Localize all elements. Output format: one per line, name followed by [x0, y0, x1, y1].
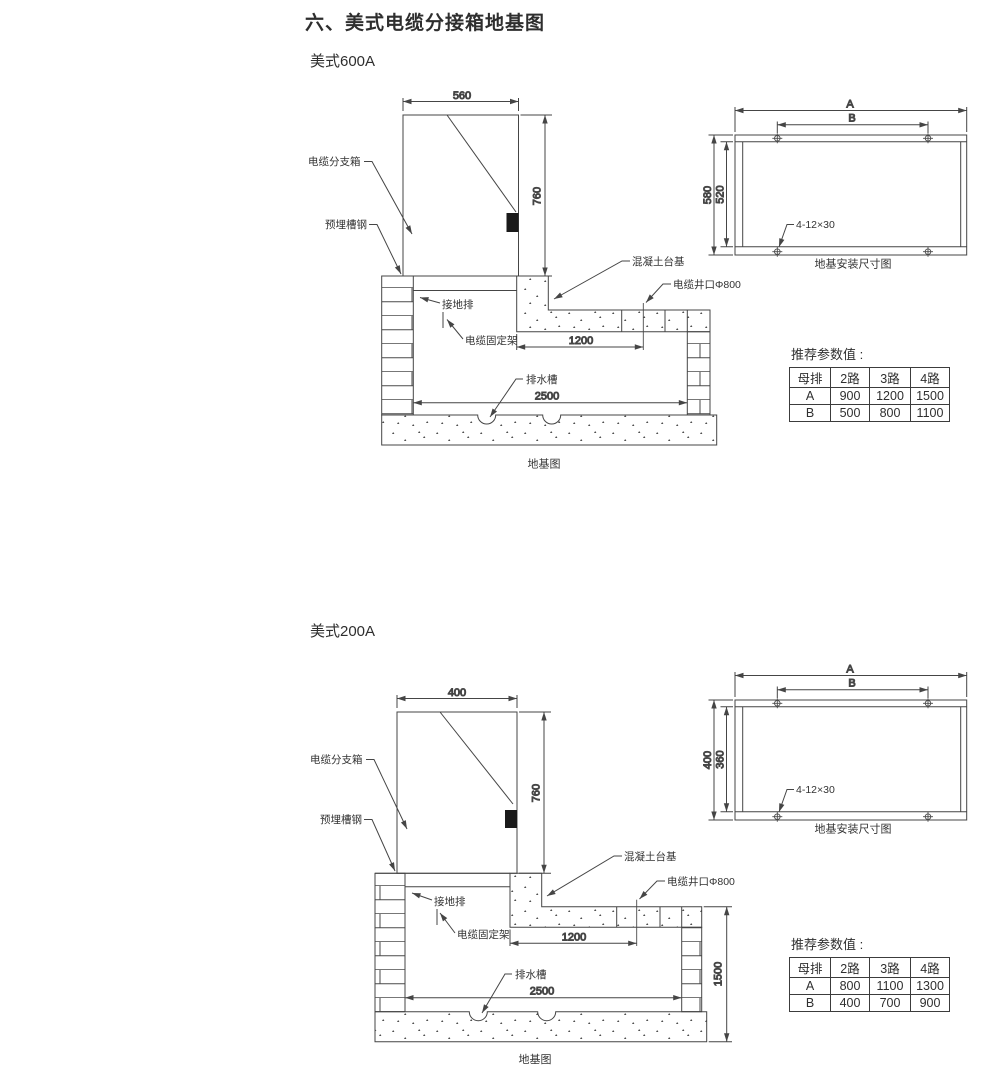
foundation-frame — [735, 700, 967, 820]
col-header: 3路 — [870, 368, 911, 388]
cell: 1200 — [870, 388, 911, 405]
label-drain: 排水槽 — [515, 968, 547, 981]
foundation-frame — [735, 135, 967, 255]
col-header: 3路 — [870, 958, 911, 978]
cabinet-outline — [403, 115, 519, 276]
table-row: B 500 800 1100 — [790, 405, 950, 422]
dim-inner-height: 360 — [715, 707, 734, 812]
brick-wall-right — [682, 927, 702, 1011]
dim-b-value: B — [848, 678, 855, 690]
dim-cabinet-width: 400 — [397, 687, 517, 708]
cell: 500 — [831, 405, 870, 422]
plan-view-caption: 地基安装尺寸图 — [815, 822, 892, 836]
cell: 400 — [831, 995, 870, 1012]
label-bolts: 4-12×30 — [796, 784, 835, 796]
params-table: 母排 2路 3路 4路 A 800 1100 1300 B 400 700 90… — [789, 957, 950, 1012]
dim-cabinet-width: 560 — [403, 90, 519, 111]
col-header: 母排 — [790, 368, 831, 388]
bottom-slab — [375, 1012, 707, 1042]
dim-a-value: A — [846, 99, 854, 111]
foundation — [375, 873, 707, 1041]
col-header: 2路 — [831, 368, 870, 388]
label-concrete-base: 混凝土台基 — [632, 255, 685, 268]
section-title-600a: 美式600A — [310, 50, 375, 71]
dim-cabinet-height: 760 — [520, 115, 552, 276]
col-header: 4路 — [911, 368, 950, 388]
brick-wall-right — [687, 332, 710, 415]
foundation — [382, 276, 717, 445]
dim-foundation-width: 2500 — [405, 986, 682, 998]
table-header-row: 母排 2路 3路 4路 — [790, 368, 950, 388]
cabinet-outline — [397, 712, 517, 873]
cell: 800 — [831, 978, 870, 995]
side-view-caption: 地基图 — [528, 458, 561, 471]
page-canvas: 六、美式电缆分接箱地基图 美式600A 美式200A 560 — [0, 0, 988, 1067]
cell: 900 — [911, 995, 950, 1012]
cell: 900 — [831, 388, 870, 405]
label-cable-well: 电缆井口Φ800 — [673, 278, 741, 291]
page-title: 六、美式电缆分接箱地基图 — [305, 8, 545, 35]
params-600a: 推荐参数值 : 母排 2路 3路 4路 A 900 1200 1500 B 50… — [789, 344, 950, 422]
cell: A — [790, 388, 831, 405]
cell: 1100 — [911, 405, 950, 422]
label-embedded-channel: 预埋槽钢 — [320, 813, 362, 826]
dim-inner-value: 360 — [715, 750, 727, 768]
dim-height-value: 760 — [532, 187, 544, 205]
dim-b: B — [777, 678, 928, 699]
dim-inner-value: 520 — [715, 185, 727, 203]
cell: 700 — [870, 995, 911, 1012]
side-view-600a: 560 760 1200 2500 电缆分支箱 — [300, 92, 750, 474]
label-concrete-base: 混凝土台基 — [624, 850, 677, 863]
plan-view-600a: A B 580 520 4-12×30 地基安装尺寸图 — [700, 95, 988, 277]
dim-depth-value: 1500 — [713, 962, 725, 986]
dim-cabinet-height: 760 — [519, 712, 551, 873]
dim-a-value: A — [846, 664, 854, 676]
cabinet — [397, 712, 517, 873]
dim-b: B — [777, 113, 928, 134]
dim-height-value: 760 — [531, 784, 543, 802]
col-header: 4路 — [911, 958, 950, 978]
table-header-row: 母排 2路 3路 4路 — [790, 958, 950, 978]
dim-platform-width: 1200 — [517, 334, 644, 350]
cell: B — [790, 405, 831, 422]
side-view-caption: 地基图 — [519, 1053, 552, 1066]
dim-width-value: 400 — [448, 687, 466, 699]
label-cable-bracket: 电缆固定架 — [457, 928, 510, 941]
door-handle — [507, 213, 519, 232]
side-view-200a: 400 760 1200 2500 — [300, 690, 750, 1067]
plan-view-caption: 地基安装尺寸图 — [815, 257, 892, 271]
dim-base-value: 2500 — [530, 986, 554, 998]
params-title: 推荐参数值 : — [791, 344, 950, 363]
bottom-slab — [382, 415, 717, 445]
cell: A — [790, 978, 831, 995]
label-cabinet: 电缆分支箱 — [310, 753, 363, 766]
label-drain: 排水槽 — [526, 373, 558, 386]
plan-view-200a: A B 400 360 4-12×30 地基安装尺寸图 — [700, 660, 988, 842]
dim-foundation-width: 2500 — [413, 391, 687, 403]
label-cable-bracket: 电缆固定架 — [465, 334, 518, 347]
cabinet — [403, 115, 519, 276]
dim-outer-value: 400 — [702, 751, 714, 769]
door-handle — [505, 810, 517, 828]
dim-platform-value: 1200 — [569, 335, 593, 347]
table-row: A 800 1100 1300 — [790, 978, 950, 995]
params-title: 推荐参数值 : — [791, 934, 950, 953]
dim-b-value: B — [848, 113, 855, 125]
table-row: B 400 700 900 — [790, 995, 950, 1012]
dim-platform-width: 1200 — [510, 930, 637, 947]
brick-wall-left — [375, 873, 405, 1011]
dim-foundation-depth: 1500 — [704, 907, 732, 1042]
dim-width-value: 560 — [453, 90, 471, 102]
col-header: 2路 — [831, 958, 870, 978]
label-bolts: 4-12×30 — [796, 219, 835, 231]
params-200a: 推荐参数值 : 母排 2路 3路 4路 A 800 1100 1300 B 40… — [789, 934, 950, 1012]
dim-platform-value: 1200 — [562, 932, 586, 944]
dim-outer-value: 580 — [702, 186, 714, 204]
label-grounding-bar: 接地排 — [434, 895, 466, 908]
dim-inner-height: 520 — [715, 142, 734, 247]
section-title-200a: 美式200A — [310, 620, 375, 641]
cell: 1300 — [911, 978, 950, 995]
cell: 800 — [870, 405, 911, 422]
col-header: 母排 — [790, 958, 831, 978]
label-grounding-bar: 接地排 — [442, 298, 474, 311]
cell: 1500 — [911, 388, 950, 405]
cell: B — [790, 995, 831, 1012]
dim-base-value: 2500 — [535, 391, 559, 403]
cell: 1100 — [870, 978, 911, 995]
params-table: 母排 2路 3路 4路 A 900 1200 1500 B 500 800 11… — [789, 367, 950, 422]
label-cabinet: 电缆分支箱 — [308, 155, 361, 168]
table-row: A 900 1200 1500 — [790, 388, 950, 405]
brick-wall-left — [382, 276, 414, 415]
label-embedded-channel: 预埋槽钢 — [325, 218, 367, 231]
label-cable-well: 电缆井口Φ800 — [667, 875, 735, 888]
